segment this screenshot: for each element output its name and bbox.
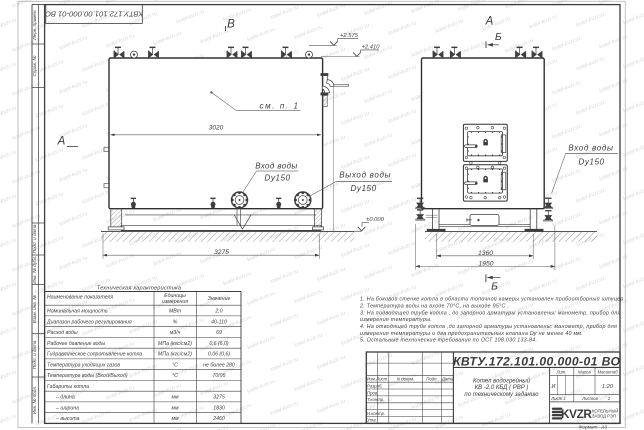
svg-text:1. На боковой стенке котла в: 1. На боковой стенке котла в области топ… bbox=[360, 296, 624, 303]
svg-text:3. На подводящей трубе котла: 3. На подводящей трубе котла , до запорн… bbox=[360, 309, 621, 316]
svg-text:3275: 3275 bbox=[214, 249, 229, 256]
svg-text:Вход воды: Вход воды bbox=[568, 144, 613, 153]
svg-text:70/95: 70/95 bbox=[213, 373, 226, 379]
svg-text:см. п. 1: см. п. 1 bbox=[259, 101, 299, 110]
svg-text:4. На отводящей трубе котла ,: 4. На отводящей трубе котла ,до запорной… bbox=[360, 323, 617, 330]
svg-text:1:20: 1:20 bbox=[602, 384, 614, 390]
svg-text:Диапазон рабочего регулировани: Диапазон рабочего регулирования bbox=[46, 319, 132, 325]
svg-text:– длина: – длина bbox=[55, 395, 75, 401]
svg-text:Перв. примен.: Перв. примен. bbox=[32, 9, 37, 40]
svg-text:%: % bbox=[173, 319, 178, 325]
svg-text:МПа (кгс/см2): МПа (кгс/см2) bbox=[158, 341, 192, 347]
svg-text:измерения: измерения bbox=[162, 299, 188, 305]
svg-text:ЗАВОД РЭП: ЗАВОД РЭП bbox=[592, 414, 616, 419]
svg-text:Масса: Масса bbox=[578, 369, 591, 374]
svg-text:МПа (кгс/см2): МПа (кгс/см2) bbox=[158, 352, 192, 358]
svg-text:Пров.: Пров. bbox=[367, 390, 378, 395]
svg-text:измерения температуры.: измерения температуры. bbox=[360, 317, 432, 323]
svg-text:Б: Б bbox=[495, 31, 502, 43]
svg-text:КВ -2,0 КБД ( РВР ): КВ -2,0 КБД ( РВР ) bbox=[475, 385, 529, 391]
svg-text:1360: 1360 bbox=[478, 250, 493, 257]
svg-text:Лист 1: Лист 1 bbox=[550, 396, 566, 401]
svg-text:Температура воды (Вход/Выход): Температура воды (Вход/Выход) bbox=[47, 373, 128, 379]
svg-text:Масштаб: Масштаб bbox=[597, 369, 618, 374]
svg-text:м3/ч: м3/ч bbox=[170, 330, 181, 336]
svg-text:Подп. и дата: Подп. и дата bbox=[32, 224, 37, 253]
svg-text:КВТУ.172.101.00.000-01 ВО: КВТУ.172.101.00.000-01 ВО bbox=[453, 354, 621, 368]
svg-text:А: А bbox=[57, 136, 66, 148]
svg-text:мм: мм bbox=[171, 405, 179, 411]
svg-text:Выход воды: Выход воды bbox=[339, 170, 391, 179]
svg-text:Подп. и дата: Подп. и дата bbox=[32, 340, 37, 369]
svg-text:2. Температура воды на входе: 2. Температура воды на входе 70°С, на вы… bbox=[359, 304, 509, 310]
svg-text:Разраб.: Разраб. bbox=[367, 383, 383, 388]
svg-text:Номинальная мощность: Номинальная мощность bbox=[47, 309, 108, 315]
svg-text:Подп.: Подп. bbox=[426, 377, 437, 382]
svg-text:КВТУ.172.101.00.000-01 ВО: КВТУ.172.101.00.000-01 ВО bbox=[45, 10, 143, 19]
svg-text:Б: Б bbox=[491, 281, 498, 293]
svg-text:+2.575: +2.575 bbox=[340, 33, 359, 39]
svg-text:Dy150: Dy150 bbox=[264, 174, 290, 183]
svg-text:мм: мм bbox=[171, 416, 179, 422]
svg-text:Значение: Значение bbox=[208, 296, 231, 302]
svg-text:Габариты котла: Габариты котла bbox=[47, 384, 89, 390]
svg-text:Температура уходящих газов: Температура уходящих газов bbox=[47, 362, 120, 368]
svg-text:Вход воды: Вход воды bbox=[255, 162, 297, 171]
svg-text:Листов: Листов bbox=[581, 396, 598, 401]
svg-text:Техническая характеристика: Техническая характеристика bbox=[97, 285, 181, 291]
svg-text:0,6 (6,0): 0,6 (6,0) bbox=[209, 341, 229, 347]
svg-text:Дата: Дата bbox=[441, 377, 454, 382]
svg-text:2460: 2460 bbox=[212, 416, 225, 422]
svg-text:Рабочее давление воды: Рабочее давление воды bbox=[47, 341, 105, 347]
svg-text:Утв.: Утв. bbox=[367, 418, 377, 423]
svg-text:°С: °С bbox=[172, 373, 178, 379]
svg-text:– высота: – высота bbox=[55, 416, 80, 422]
svg-text:МВт: МВт bbox=[169, 309, 182, 315]
svg-text:Dy150: Dy150 bbox=[351, 184, 377, 193]
svg-text:А3: А3 bbox=[600, 424, 607, 430]
svg-text:Изм.Лист: Изм.Лист bbox=[367, 377, 388, 382]
svg-text:Dy150: Dy150 bbox=[578, 158, 604, 167]
svg-text:KVZR: KVZR bbox=[561, 407, 592, 421]
svg-text:Формат: Формат bbox=[578, 424, 597, 430]
svg-text:Инв. № подл.: Инв. № подл. bbox=[32, 386, 37, 415]
svg-text:Наименование показателя: Наименование показателя bbox=[47, 295, 113, 301]
svg-text:В: В bbox=[227, 19, 235, 31]
svg-text:Расход воды: Расход воды bbox=[47, 330, 78, 336]
svg-text:Взам. инв. №: Взам. инв. № bbox=[32, 295, 37, 323]
svg-text:Справ. №: Справ. № bbox=[32, 56, 37, 77]
svg-text:Н.контр.: Н.контр. bbox=[367, 411, 385, 416]
svg-text:°С: °С bbox=[172, 362, 178, 368]
svg-text:Т.контр.: Т.контр. bbox=[367, 397, 384, 402]
svg-text:не более 280: не более 280 bbox=[203, 362, 235, 368]
svg-text:40-110: 40-110 bbox=[211, 319, 227, 325]
svg-text:±0.000: ±0.000 bbox=[366, 217, 384, 223]
svg-text:1950: 1950 bbox=[478, 260, 493, 267]
svg-text:Гидравлическое сопротивление к: Гидравлическое сопротивление котла bbox=[47, 352, 142, 358]
svg-text:Инв. № дубл.: Инв. № дубл. bbox=[32, 255, 37, 283]
svg-text:0,06 (0,6): 0,06 (0,6) bbox=[208, 352, 230, 358]
svg-text:по техническому заданию: по техническому заданию bbox=[464, 392, 539, 398]
svg-text:Лит.: Лит. bbox=[555, 369, 566, 374]
svg-text:69: 69 bbox=[216, 330, 222, 336]
svg-text:И: И bbox=[551, 384, 555, 390]
svg-text:мм: мм bbox=[171, 395, 179, 401]
svg-text:– ширина: – ширина bbox=[55, 405, 79, 411]
svg-text:5. Остальные технические треб: 5. Остальные технические требования по О… bbox=[360, 338, 537, 344]
svg-text:измерения температуры и два пр: измерения температуры и два предохраните… bbox=[360, 331, 583, 337]
svg-text:3275: 3275 bbox=[213, 395, 225, 401]
svg-text:3020: 3020 bbox=[209, 124, 224, 131]
svg-text:N докум.: N докум. bbox=[397, 377, 414, 382]
svg-text:2,0: 2,0 bbox=[214, 309, 222, 315]
svg-text:А: А bbox=[485, 15, 494, 27]
svg-text:1830: 1830 bbox=[213, 405, 225, 411]
svg-text:+2.410: +2.410 bbox=[362, 44, 381, 50]
svg-text:Котел водогрейный: Котел водогрейный bbox=[473, 377, 531, 384]
